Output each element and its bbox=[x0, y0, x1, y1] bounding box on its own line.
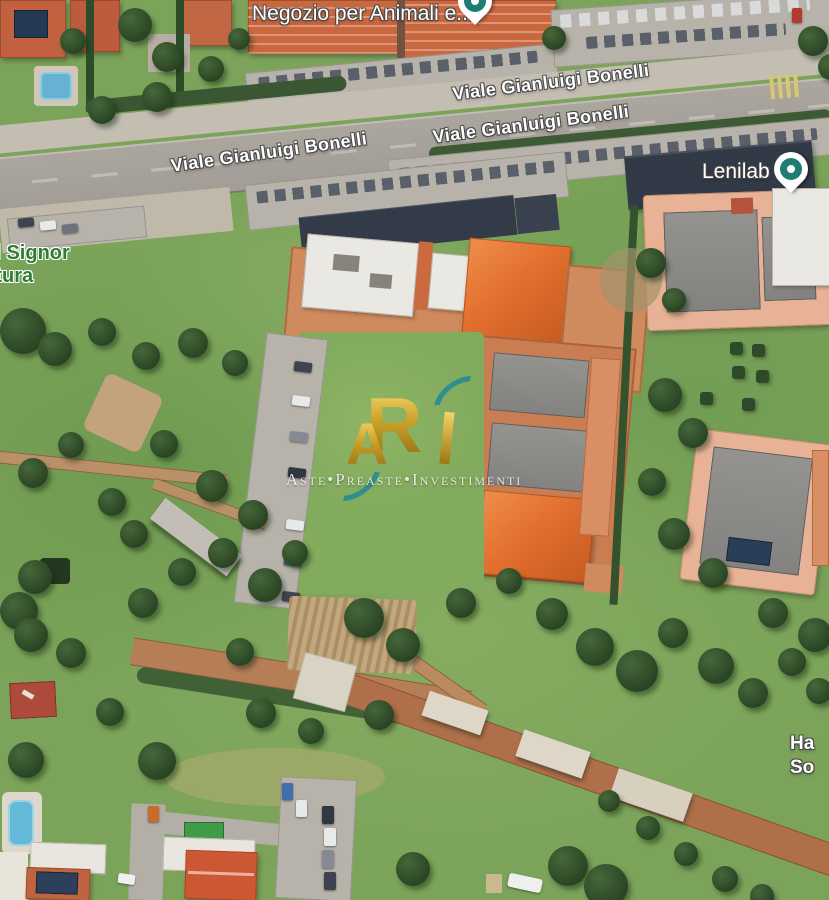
tree bbox=[446, 588, 476, 618]
shed bbox=[486, 874, 502, 893]
pool bbox=[40, 72, 72, 100]
tree bbox=[38, 332, 72, 366]
tree bbox=[120, 520, 148, 548]
tree bbox=[60, 28, 86, 54]
tree bbox=[222, 350, 248, 376]
tree bbox=[658, 518, 690, 550]
car bbox=[322, 850, 334, 868]
tree bbox=[584, 864, 628, 900]
narrow-building bbox=[812, 450, 829, 566]
bush bbox=[732, 366, 745, 379]
tree bbox=[8, 742, 44, 778]
skylight bbox=[369, 273, 392, 289]
solar-panels bbox=[36, 871, 79, 894]
poi-label-lenilab[interactable]: Lenilab bbox=[702, 160, 770, 184]
chimney bbox=[731, 197, 754, 214]
tree bbox=[132, 342, 160, 370]
tree bbox=[648, 378, 682, 412]
tree bbox=[208, 538, 238, 568]
tree bbox=[142, 82, 172, 112]
tree bbox=[228, 28, 250, 50]
crosswalk bbox=[769, 73, 801, 100]
tree bbox=[576, 628, 614, 666]
tree bbox=[246, 698, 276, 728]
tree bbox=[118, 8, 152, 42]
tree bbox=[298, 718, 324, 744]
tree bbox=[636, 248, 666, 278]
tree bbox=[98, 488, 126, 516]
bush bbox=[598, 790, 620, 812]
tree bbox=[662, 288, 686, 312]
tree bbox=[18, 458, 48, 488]
tree bbox=[798, 26, 828, 56]
bush bbox=[712, 866, 738, 892]
tree bbox=[698, 558, 728, 588]
poi-label-edge-line1[interactable]: Ha bbox=[790, 733, 814, 755]
bush bbox=[700, 392, 713, 405]
tree bbox=[152, 42, 182, 72]
tree bbox=[168, 558, 196, 586]
tree bbox=[542, 26, 566, 50]
car bbox=[324, 872, 336, 890]
tree bbox=[364, 700, 394, 730]
tree bbox=[678, 418, 708, 448]
tree bbox=[196, 470, 228, 502]
canopy-structure bbox=[609, 768, 693, 822]
tree bbox=[58, 432, 84, 458]
tree bbox=[238, 500, 268, 530]
car bbox=[18, 217, 35, 228]
tree bbox=[14, 618, 48, 652]
tree bbox=[778, 648, 806, 676]
car bbox=[291, 395, 310, 407]
car bbox=[62, 223, 79, 234]
tree bbox=[282, 540, 308, 566]
tree bbox=[18, 560, 52, 594]
orange-hip-roof bbox=[477, 490, 596, 583]
bush bbox=[750, 884, 774, 900]
tree bbox=[536, 598, 568, 630]
bush bbox=[730, 342, 743, 355]
tree bbox=[658, 618, 688, 648]
tree bbox=[396, 852, 430, 886]
pool bbox=[8, 800, 34, 846]
tree bbox=[616, 650, 658, 692]
gray-roof bbox=[489, 352, 590, 418]
playground bbox=[9, 681, 57, 719]
tree bbox=[178, 328, 208, 358]
tree bbox=[698, 648, 734, 684]
tree bbox=[638, 468, 666, 496]
orange-hip-roof bbox=[461, 238, 571, 347]
bush bbox=[752, 344, 765, 357]
tree bbox=[150, 430, 178, 458]
car bbox=[293, 361, 312, 373]
tree bbox=[226, 638, 254, 666]
tree bbox=[248, 568, 282, 602]
hedge bbox=[86, 0, 94, 112]
tree bbox=[138, 742, 176, 780]
watermark-tagline: Aste•Preaste•Investimenti bbox=[286, 470, 523, 490]
tree bbox=[88, 96, 116, 124]
tree bbox=[344, 598, 384, 638]
tree bbox=[56, 638, 86, 668]
watermark-logo: R A bbox=[338, 386, 488, 482]
tree bbox=[758, 598, 788, 628]
poi-label-edge-line2[interactable]: So bbox=[790, 757, 814, 779]
tree bbox=[386, 628, 420, 662]
car bbox=[296, 800, 307, 817]
car bbox=[289, 431, 308, 443]
poi-label-negozio[interactable]: Negozio per Animali e... bbox=[252, 2, 474, 26]
car bbox=[507, 873, 543, 894]
bush bbox=[674, 842, 698, 866]
white-roof bbox=[301, 234, 419, 317]
tree bbox=[128, 588, 158, 618]
building-roof bbox=[0, 852, 28, 900]
tree bbox=[96, 698, 124, 726]
bush bbox=[742, 398, 755, 411]
car bbox=[324, 828, 336, 846]
solar-panels bbox=[14, 10, 48, 38]
tree bbox=[88, 318, 116, 346]
car bbox=[792, 8, 802, 23]
white-building bbox=[772, 188, 829, 286]
tree bbox=[798, 618, 829, 652]
car bbox=[282, 783, 293, 800]
tree bbox=[806, 678, 829, 704]
poi-label-church-line2[interactable]: entura bbox=[0, 265, 33, 288]
tree bbox=[198, 56, 224, 82]
car bbox=[322, 806, 334, 824]
tree bbox=[548, 846, 588, 886]
car bbox=[148, 806, 159, 822]
car bbox=[285, 519, 304, 531]
satellite-map[interactable]: R A Aste•Preaste•Investimenti Negozio pe… bbox=[0, 0, 829, 900]
tree bbox=[738, 678, 768, 708]
car bbox=[40, 220, 57, 231]
tree bbox=[496, 568, 522, 594]
poi-label-church-line1[interactable]: del Signor bbox=[0, 242, 70, 265]
car bbox=[117, 873, 135, 885]
bush bbox=[636, 816, 660, 840]
bush bbox=[756, 370, 769, 383]
skylight bbox=[333, 254, 360, 272]
